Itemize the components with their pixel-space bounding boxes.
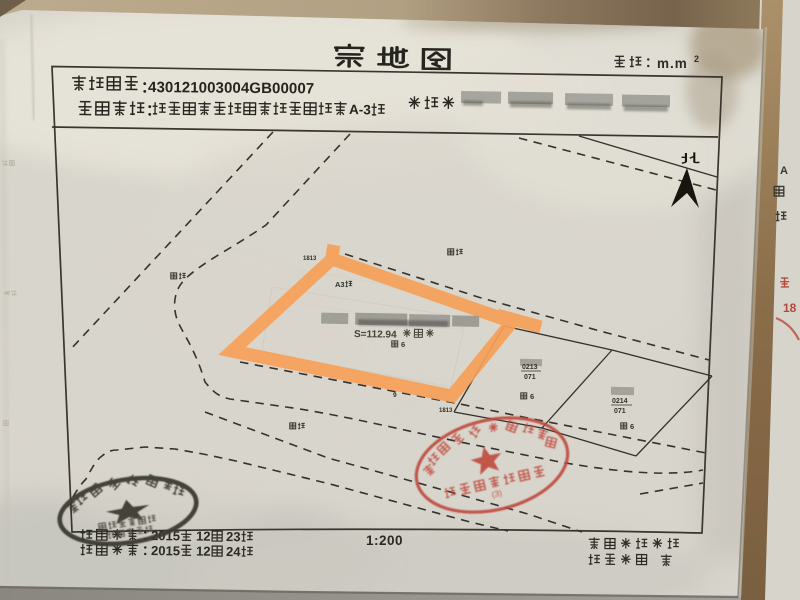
svg-text:：: ： [146,102,161,119]
svg-text:S=112.94: S=112.94 [354,329,397,341]
svg-text:18: 18 [783,301,797,315]
svg-text:2: 2 [694,54,699,64]
svg-text:A3: A3 [335,280,345,289]
svg-text:24: 24 [226,544,241,559]
svg-text:1813: 1813 [439,408,453,414]
svg-text:0213: 0213 [522,364,538,371]
svg-text:071: 071 [614,408,626,415]
svg-text:1813: 1813 [303,256,317,262]
svg-text:12: 12 [196,529,211,544]
svg-text:23: 23 [226,529,241,544]
svg-text:6: 6 [630,422,634,431]
svg-text:9: 9 [393,392,397,399]
svg-text:2015: 2015 [151,543,180,558]
svg-text:071: 071 [524,374,536,381]
svg-text:6: 6 [401,340,405,349]
svg-text:A: A [780,165,788,177]
svg-text:1:200: 1:200 [366,533,403,548]
svg-text:0214: 0214 [612,398,628,405]
svg-text:430121003004GB00007: 430121003004GB00007 [148,79,314,97]
svg-text:A-3: A-3 [349,102,371,117]
svg-text:6: 6 [530,392,534,401]
svg-text:m.m: m.m [657,56,688,71]
svg-text:12: 12 [196,544,211,559]
